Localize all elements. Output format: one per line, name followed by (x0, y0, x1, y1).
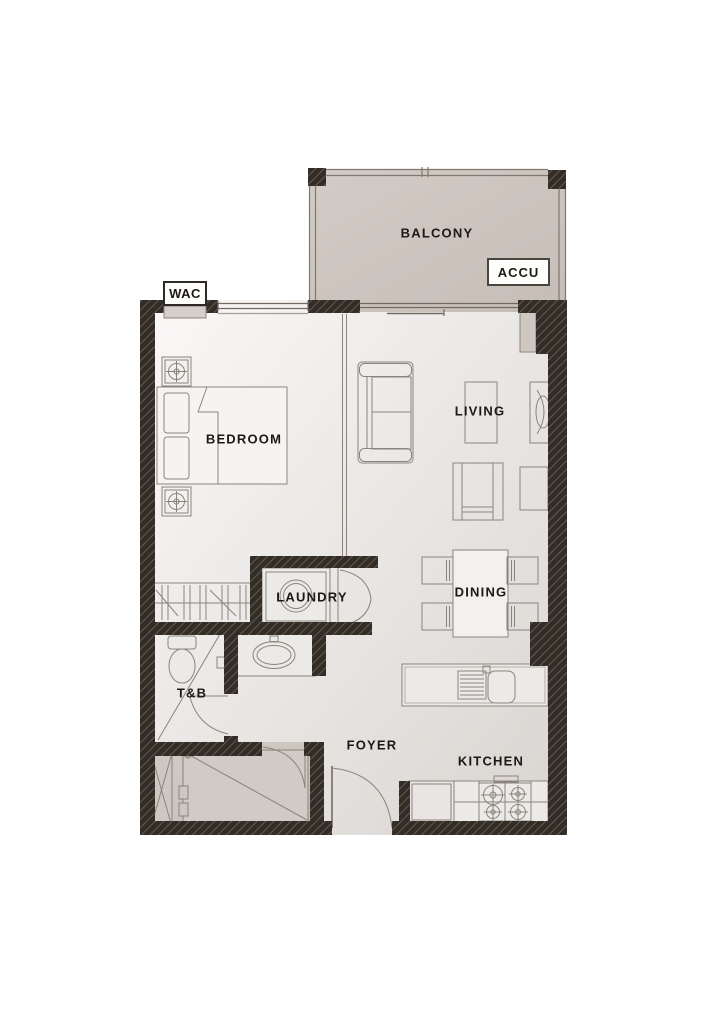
tb-bottom-wall (140, 742, 262, 756)
nightstand-top (162, 357, 191, 386)
floor-plan-drawing (0, 0, 724, 1024)
right-wall-column (536, 306, 567, 354)
dining-column (530, 622, 548, 666)
bottom-wall-left (140, 821, 332, 835)
tb-right-wall-upper (224, 622, 238, 694)
bottom-wall-right (392, 821, 567, 835)
wac-unit (164, 306, 206, 318)
refrigerator (409, 781, 454, 823)
vanity-sink (237, 634, 315, 676)
foyer-ledge-wall (310, 742, 324, 835)
vanity-side-wall (312, 628, 326, 676)
kitchen-sink-counter (402, 664, 548, 706)
entry-wall-stub (399, 781, 410, 825)
bedroom-label: BEDROOM (206, 432, 282, 447)
laundry-top-wall (250, 556, 378, 568)
toilet (168, 636, 196, 683)
dining-label: DINING (455, 585, 508, 600)
living-label: LIVING (455, 404, 506, 419)
laundry-left-wall (250, 556, 262, 635)
foyer-label: FOYER (347, 738, 398, 753)
wall-niche (520, 312, 536, 352)
toilet-bath-label: T&B (177, 686, 207, 701)
balcony-label: BALCONY (401, 226, 474, 241)
nightstand-bottom (162, 487, 191, 516)
right-wall (548, 306, 567, 835)
top-wall-mid (308, 300, 360, 313)
balcony-floor (310, 170, 566, 312)
laundry-label: LAUNDRY (276, 590, 347, 605)
kitchen-label: KITCHEN (458, 754, 524, 769)
wac-tag: WAC (163, 281, 207, 306)
accu-tag: ACCU (487, 258, 550, 286)
floor-plan-canvas: BALCONY BEDROOM LIVING DINING LAUNDRY T&… (0, 0, 724, 1024)
